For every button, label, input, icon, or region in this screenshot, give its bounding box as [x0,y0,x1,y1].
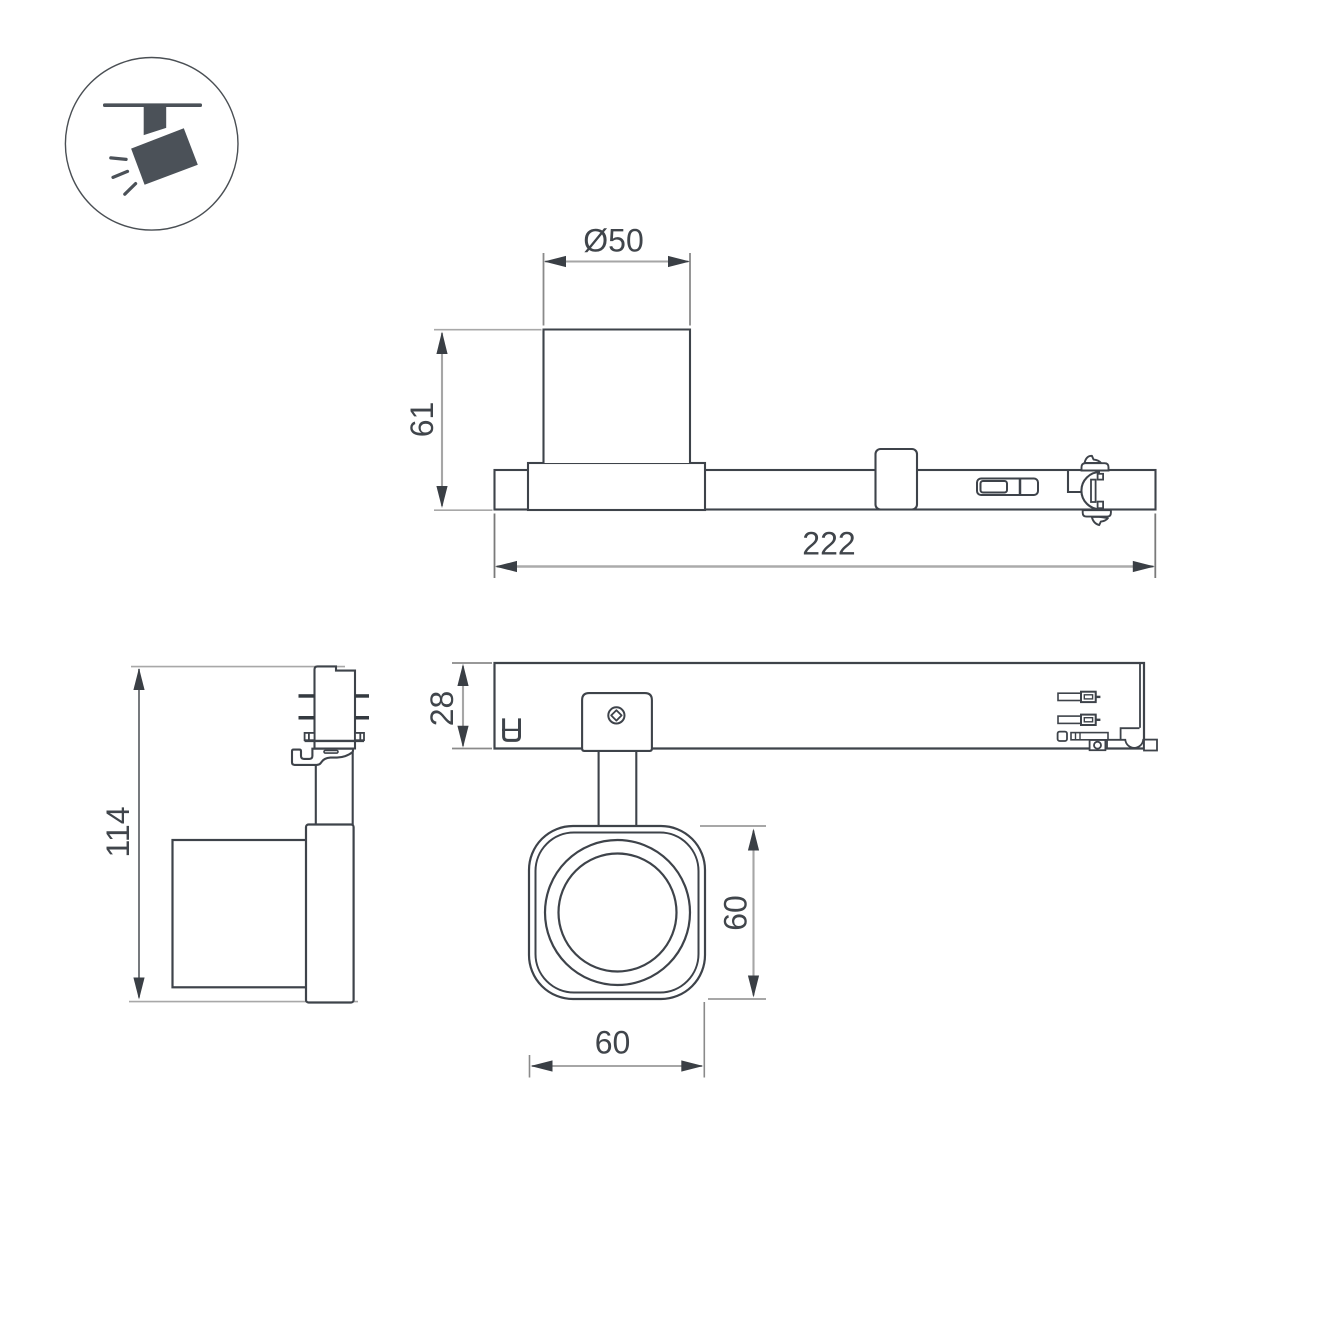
svg-text:222: 222 [802,526,855,562]
svg-text:114: 114 [100,806,136,857]
svg-text:60: 60 [718,895,754,931]
svg-text:60: 60 [595,1025,631,1061]
svg-text:61: 61 [404,402,440,438]
svg-text:28: 28 [424,691,460,727]
svg-text:Ø50: Ø50 [583,223,643,259]
